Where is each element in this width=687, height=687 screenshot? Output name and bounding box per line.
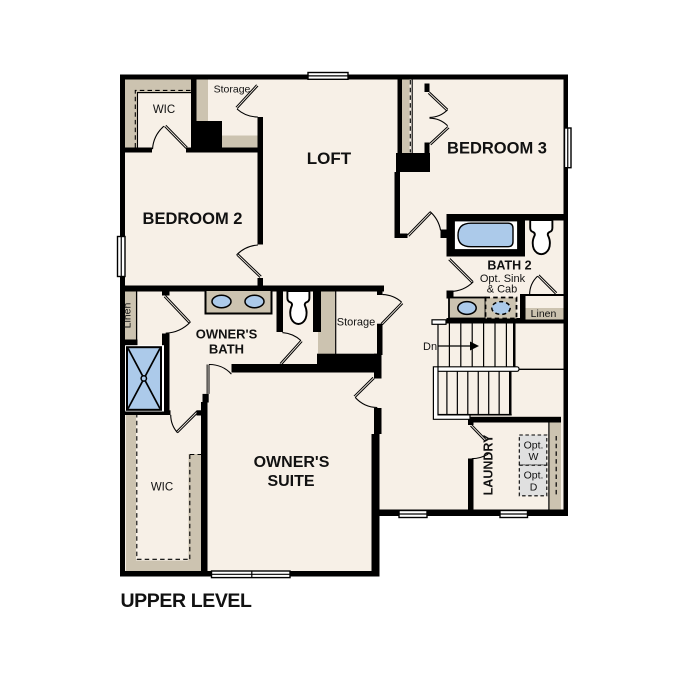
svg-text:LOFT: LOFT [307, 149, 352, 168]
svg-text:WIC: WIC [153, 104, 175, 116]
svg-text:BEDROOM 3: BEDROOM 3 [447, 140, 547, 158]
svg-text:Opt.: Opt. [524, 440, 544, 452]
svg-text:Linen: Linen [531, 308, 557, 320]
svg-text:LAUNDRY: LAUNDRY [482, 434, 496, 495]
svg-text:OWNER'S: OWNER'S [254, 454, 330, 471]
svg-text:D: D [530, 481, 538, 493]
svg-text:BATH: BATH [209, 342, 244, 357]
svg-text:BEDROOM 2: BEDROOM 2 [143, 210, 243, 228]
svg-text:Dn: Dn [423, 341, 437, 353]
svg-text:Storage: Storage [214, 84, 251, 96]
svg-text:WIC: WIC [151, 482, 173, 494]
svg-text:W: W [529, 451, 539, 463]
svg-text:UPPER LEVEL: UPPER LEVEL [121, 590, 253, 612]
svg-text:Storage: Storage [337, 317, 376, 329]
svg-text:Linen: Linen [122, 303, 134, 329]
svg-text:Opt.: Opt. [524, 470, 544, 482]
svg-text:SUITE: SUITE [267, 473, 314, 490]
svg-text:& Cab: & Cab [487, 284, 518, 296]
svg-text:BATH 2: BATH 2 [487, 259, 531, 273]
svg-text:OWNER'S: OWNER'S [196, 327, 258, 342]
